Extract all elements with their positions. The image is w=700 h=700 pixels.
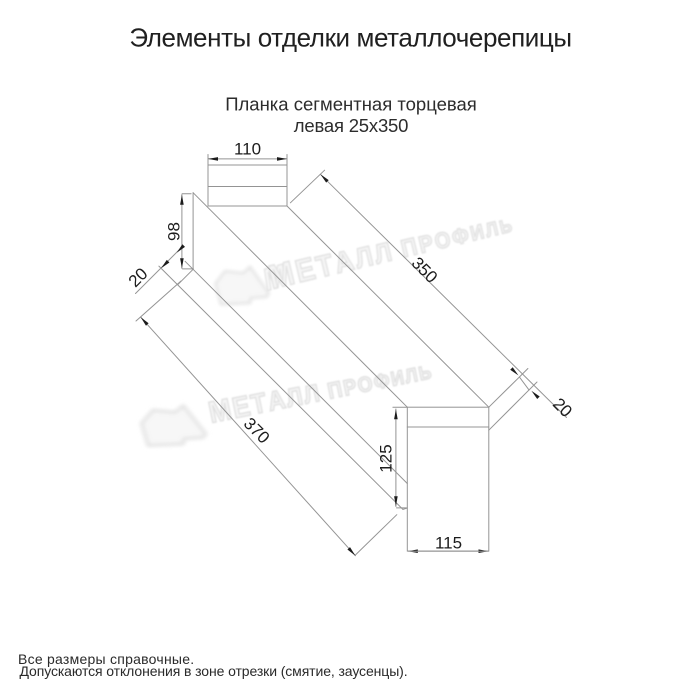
svg-text:МЕТАЛЛ ПРОФИЛЬ: МЕТАЛЛ ПРОФИЛЬ	[265, 201, 517, 296]
svg-text:20: 20	[125, 264, 152, 291]
svg-text:МЕТАЛЛ ПРОФИЛЬ: МЕТАЛЛ ПРОФИЛЬ	[206, 352, 435, 430]
svg-text:125: 125	[377, 444, 396, 472]
svg-text:левая 25х350: левая 25х350	[294, 115, 408, 136]
svg-text:110: 110	[234, 140, 261, 159]
svg-text:20: 20	[549, 394, 576, 421]
svg-text:Элементы отделки металлочерепи: Элементы отделки металлочерепицы	[129, 23, 571, 53]
svg-text:Планка сегментная торцевая: Планка сегментная торцевая	[225, 93, 477, 114]
svg-text:98: 98	[165, 222, 184, 241]
svg-text:Допускаются отклонения в зоне: Допускаются отклонения в зоне отрезки (с…	[20, 663, 408, 679]
svg-text:115: 115	[435, 534, 462, 553]
